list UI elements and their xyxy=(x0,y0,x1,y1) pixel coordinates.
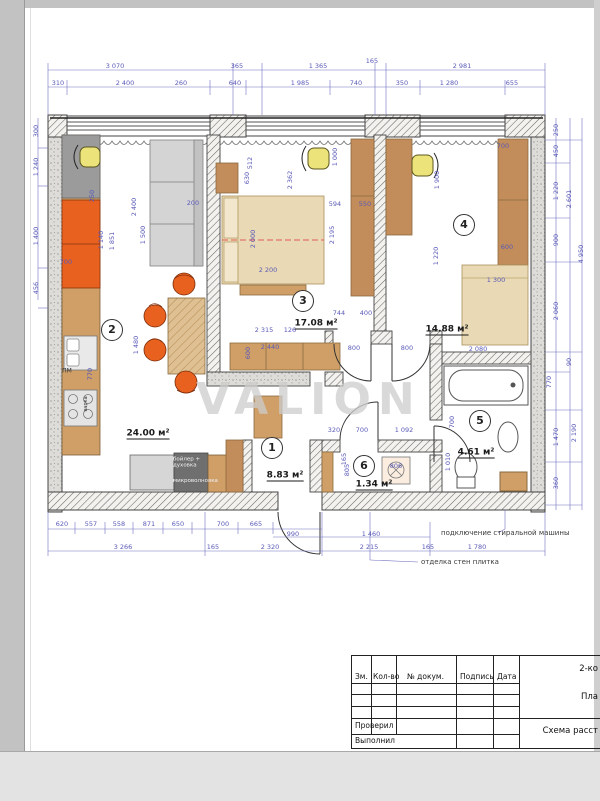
bedroom-furniture xyxy=(216,139,374,438)
door-arc xyxy=(392,344,430,381)
entrance-door-arc xyxy=(278,512,320,554)
tb-row-done: Выполнил xyxy=(355,736,395,745)
tb-col-date: Дата xyxy=(497,672,516,681)
bed-bench xyxy=(240,285,306,295)
room4-furniture xyxy=(386,139,528,345)
tb-scheme-title: Схема расст xyxy=(543,726,598,736)
dark-cabinet xyxy=(174,453,208,492)
lamp-icon xyxy=(308,148,329,169)
nightstand xyxy=(216,163,238,193)
floor-plan-drawing xyxy=(0,0,600,620)
tb-col-sign: Подпись xyxy=(460,672,494,681)
tb-project-title: 2-ко xyxy=(579,664,598,674)
scan-margin-bottom xyxy=(0,751,600,801)
cabinet-row xyxy=(230,343,340,370)
tb-row-checked: Проверил xyxy=(355,721,393,730)
wash-basin xyxy=(498,422,518,452)
tb-col-zm: Зм. xyxy=(355,672,368,681)
title-block: Зм. Кол-во № докум. Подпись Дата Провери… xyxy=(351,655,600,749)
hall-wardrobe xyxy=(226,440,243,492)
wardrobe-room3 xyxy=(351,139,374,296)
lamp-icon xyxy=(412,155,433,176)
lamp-icon xyxy=(80,147,100,167)
bed-room4 xyxy=(462,265,528,345)
tb-col-doc: № докум. xyxy=(407,672,444,681)
bathroom-fixtures xyxy=(444,366,528,491)
hall-cabinet xyxy=(254,396,282,438)
cabinet-room4 xyxy=(386,139,412,235)
washing-machine-spot xyxy=(500,472,527,491)
dining-table xyxy=(168,298,205,374)
windows xyxy=(50,116,543,136)
scanned-floor-plan-page: { "watermark": "VALION", "rooms": [ {"nu… xyxy=(0,0,600,800)
bath-drain xyxy=(511,383,515,387)
tb-col-kol: Кол-во xyxy=(373,672,399,681)
tb-sheet-title: Пла xyxy=(581,692,598,702)
toilet-tank xyxy=(457,477,475,488)
stove xyxy=(64,390,97,426)
insulation-scallop-line xyxy=(64,141,528,145)
door-arc xyxy=(340,402,378,440)
wardrobe-room4 xyxy=(498,139,528,265)
boiler-oven-cabinet xyxy=(130,455,174,490)
